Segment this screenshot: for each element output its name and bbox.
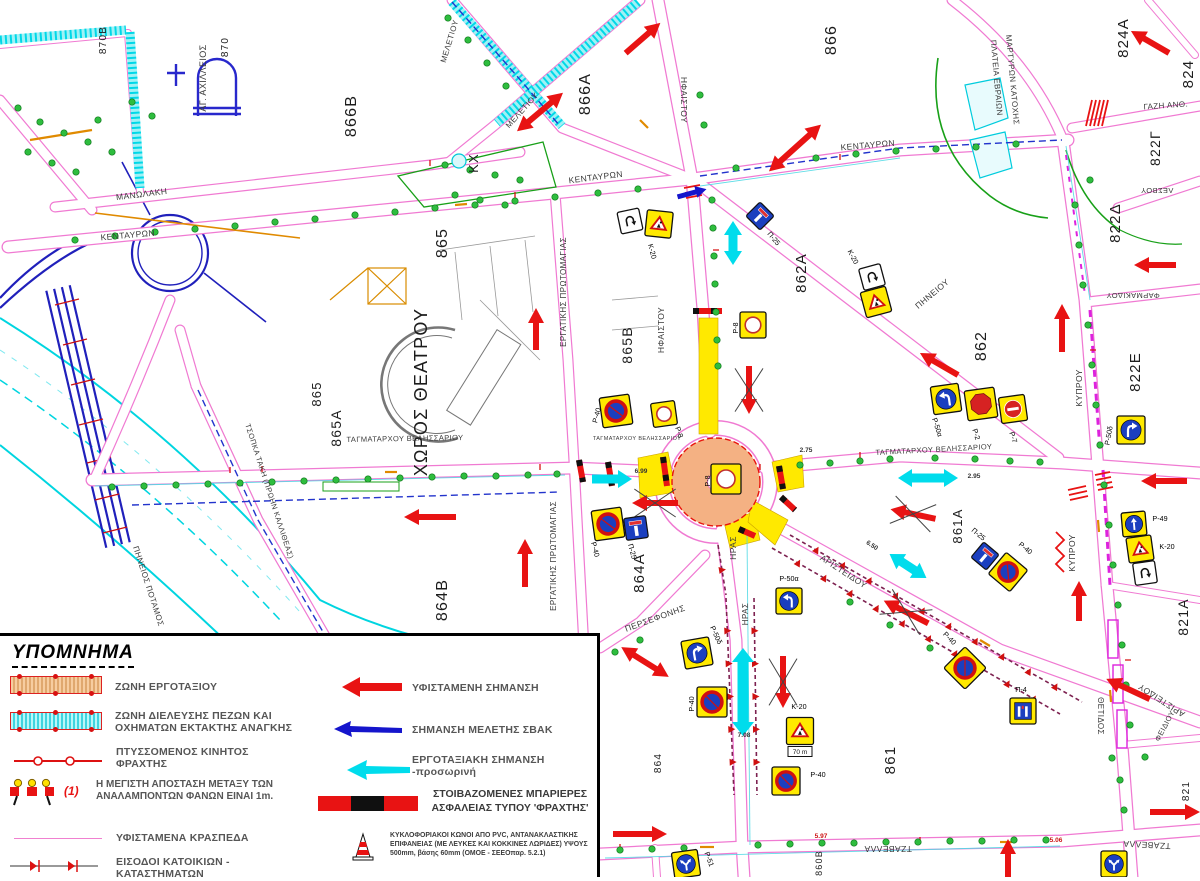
tree-marker <box>1085 322 1091 328</box>
street-label: ΠΗΝΕΙΟΥ <box>913 277 951 311</box>
tree-marker <box>847 599 853 605</box>
sign-label: Ρ-7 <box>1007 431 1019 444</box>
block-label: 864 <box>653 753 664 773</box>
tree-marker <box>492 172 498 178</box>
block-label: 870 <box>220 37 231 57</box>
tree-marker <box>979 838 985 844</box>
legend-label: ΕΡΓΟΤΑΞΙΑΚΗ ΣΗΜΑΝΣΗ <box>412 754 545 766</box>
sign-label: Ρ-8 <box>731 322 740 333</box>
tree-marker <box>887 456 893 462</box>
tree-marker <box>1106 522 1112 528</box>
legend-panel: ΥΠΟΜΝΗΜΑ ΖΩΝΗ ΕΡΓΟΤΑΞΙΟΥ ΖΩΝΗ ΔΙΕΛΕΥΣΗΣ … <box>0 633 600 877</box>
tree-marker <box>710 225 716 231</box>
tree-marker <box>512 198 518 204</box>
traffic-cone-marker <box>846 588 856 598</box>
street-label: ΜΕΛΕΤΙΟΥ <box>439 19 461 64</box>
stacked-barrier <box>781 497 795 510</box>
tree-marker <box>714 337 720 343</box>
tree-marker <box>554 471 560 477</box>
legend-label: ΥΦΙΣΤΑΜΕΝΑ ΚΡΑΣΠΕΔΑ <box>116 832 249 844</box>
tree-marker <box>461 473 467 479</box>
tree-marker <box>853 151 859 157</box>
tree-marker <box>1093 402 1099 408</box>
dimension-number: 5.97 <box>815 833 828 840</box>
tree-marker <box>887 622 893 628</box>
tree-marker <box>432 205 438 211</box>
pedestrian-zone-swatch <box>10 712 102 730</box>
street-label: ΤΑΓΜΑΤΑΡΧΟΥ ΒΕΛΗΣΣΑΡΙΟΥ <box>593 436 681 442</box>
cyan-signage-arrow <box>885 546 932 585</box>
sign-label: Κ-20 <box>846 248 861 266</box>
tree-marker <box>1127 722 1133 728</box>
block-label: 865Α <box>328 409 344 447</box>
legend-label: ΚΑΤΑΣΤΗΜΑΤΩΝ <box>116 868 204 880</box>
block-label: 824 <box>1180 60 1197 89</box>
dimension-number: 6.50 <box>865 539 880 552</box>
stacked-barrier <box>779 466 783 489</box>
tree-marker <box>827 460 833 466</box>
street-label: ΕΡΓΑΤΙΚΗΣ ΠΡΩΤΟΜΑΓΙΑΣ <box>559 237 568 347</box>
tree-marker <box>552 194 558 200</box>
traffic-sign-k20 <box>645 210 674 239</box>
sign-label: Ρ-8 <box>703 475 712 486</box>
block-label: ΚΧ <box>466 153 481 173</box>
red-signage-arrow <box>735 366 763 414</box>
tree-marker <box>893 148 899 154</box>
block-label: 866 <box>823 25 840 55</box>
tree-marker <box>1043 837 1049 843</box>
tree-marker <box>484 60 490 66</box>
tree-marker <box>472 202 478 208</box>
legend-label: ΚΥΚΛΟΦΟΡΙΑΚΟΙ ΚΩΝΟΙ ΑΠΟ PVC, ΑΝΤΑΝΑΚΛΑΣΤ… <box>390 832 590 859</box>
sign-label: Ρ-49 <box>1152 514 1167 523</box>
tree-marker <box>1087 177 1093 183</box>
traffic-sign-uturn <box>617 208 643 234</box>
traffic-sign-p51 <box>1101 851 1127 877</box>
street-label: ΗΦΑΙΣΤΟΥ <box>656 307 666 353</box>
tree-marker <box>709 197 715 203</box>
traffic-sign-uturn <box>1133 561 1158 586</box>
block-label: 822Δ <box>1107 203 1124 243</box>
tree-marker <box>445 15 451 21</box>
tree-marker <box>697 92 703 98</box>
tree-marker <box>933 146 939 152</box>
sign-label: Π-25 <box>970 526 988 543</box>
traffic-sign-p49 <box>1121 511 1147 537</box>
tree-marker <box>37 119 43 125</box>
traffic-cone-marker <box>872 603 882 613</box>
tree-marker <box>517 177 523 183</box>
tree-marker <box>715 363 721 369</box>
traffic-sign-p50d <box>681 637 713 669</box>
block-label: ΧΩΡΟΣ ΘΕΑΤΡΟΥ <box>411 308 431 476</box>
tree-marker <box>493 473 499 479</box>
tree-marker <box>617 847 623 853</box>
legend-label: ΖΩΝΗ ΕΡΓΟΤΑΞΙΟΥ <box>115 681 217 693</box>
traffic-cone-icon <box>352 832 374 867</box>
traffic-sign-k20 <box>787 718 814 745</box>
sign-label: Ρ-50δ <box>708 624 724 645</box>
block-label: 861 <box>882 746 899 775</box>
block-label: 865 <box>434 228 451 258</box>
tree-marker <box>149 113 155 119</box>
street-label: ΗΡΑΣ <box>728 536 738 560</box>
mobile-fence <box>751 598 760 795</box>
legend-label: ΕΙΣΟΔΟΙ ΚΑΤΟΙΚΙΩΝ - <box>116 856 230 868</box>
tree-marker <box>1037 459 1043 465</box>
tree-marker <box>713 309 719 315</box>
street-label: ΑΓ. ΑΧΙΛΛΕΙΟΣ <box>198 44 208 111</box>
tree-marker <box>1007 458 1013 464</box>
tree-marker <box>755 842 761 848</box>
note-number: (1) <box>64 784 79 798</box>
tree-marker <box>61 130 67 136</box>
tree-marker <box>173 482 179 488</box>
tree-marker <box>1089 362 1095 368</box>
tree-marker <box>1117 777 1123 783</box>
tree-marker <box>503 83 509 89</box>
red-signage-arrow <box>613 826 667 842</box>
block-label: 865 <box>309 381 324 406</box>
tree-marker <box>129 99 135 105</box>
red-signage-arrow <box>517 539 533 587</box>
block-label: 824Α <box>1115 18 1132 58</box>
tree-marker <box>712 281 718 287</box>
dimension-number: 6.99 <box>635 468 648 475</box>
curb-swatch <box>14 838 102 839</box>
folding-fence-icon <box>14 754 102 772</box>
block-label: 822Ε <box>1127 352 1144 392</box>
block-label: 870Β <box>98 26 109 54</box>
red-signage-arrow <box>617 640 673 683</box>
street-label: ΕΡΓΑΤΙΚΗΣ ΠΡΩΤΟΜΑΓΙΑΣ <box>549 501 558 611</box>
traffic-sign-p50d <box>1117 416 1145 444</box>
tree-marker <box>635 186 641 192</box>
stacked-barrier <box>663 457 667 486</box>
tree-marker <box>932 455 938 461</box>
traffic-sign-p8 <box>711 464 741 494</box>
tree-marker <box>1072 202 1078 208</box>
sign-label: Κ-20 <box>1159 542 1174 551</box>
red-signage-arrow <box>769 656 797 708</box>
tree-marker <box>192 226 198 232</box>
street-label: ΚΥΠΡΟΥ <box>1067 534 1077 572</box>
traffic-sign-p40 <box>591 507 625 541</box>
entrances-icon <box>10 858 98 877</box>
tree-marker <box>1011 837 1017 843</box>
tree-marker <box>72 237 78 243</box>
svg-text:70 m: 70 m <box>793 749 807 756</box>
street-label: ΦΑΡΜΑΚΙΔΟΥ <box>1106 291 1160 300</box>
traffic-sign-p25 <box>624 516 649 541</box>
tree-marker <box>502 202 508 208</box>
street-label: ΤΖΑΒΕΛΛΑ <box>864 844 912 854</box>
red-signage-arrow <box>1071 581 1087 621</box>
sign-label: Π-4 <box>1015 685 1027 694</box>
tree-marker <box>15 105 21 111</box>
traffic-sign-p40 <box>599 394 633 428</box>
traffic-sign-k20 <box>1126 535 1154 563</box>
tree-marker <box>392 209 398 215</box>
tree-marker <box>813 155 819 161</box>
street-label: ΤΖΑΒΕΛΛΑ <box>1123 839 1171 851</box>
tree-marker <box>711 253 717 259</box>
tree-marker <box>595 190 601 196</box>
tree-marker <box>109 149 115 155</box>
tree-marker <box>397 475 403 481</box>
block-label: 821Α <box>1175 598 1191 636</box>
tree-marker <box>947 838 953 844</box>
legend-label: Η ΜΕΓΙΣΤΗ ΑΠΟΣΤΑΣΗ ΜΕΤΑΞΥ ΤΩΝ <box>96 779 273 790</box>
tree-marker <box>1115 602 1121 608</box>
tree-marker <box>205 481 211 487</box>
legend-title: ΥΠΟΜΝΗΜΑ <box>12 642 134 668</box>
tree-marker <box>1101 482 1107 488</box>
tree-marker <box>819 840 825 846</box>
block-label: 866Α <box>577 73 594 115</box>
tree-marker <box>1119 642 1125 648</box>
sign-label: Ρ-40 <box>810 770 825 779</box>
dimension-number: 7.08 <box>738 732 751 739</box>
block-label: 822Γ <box>1147 130 1163 166</box>
traffic-sign-p8 <box>740 312 766 338</box>
traffic-sign-p40 <box>772 767 800 795</box>
tree-marker <box>927 645 933 651</box>
tree-marker <box>1142 754 1148 760</box>
tree-marker <box>1121 807 1127 813</box>
legend-label: ΣΤΟΙΒΑΖΟΜΕΝΕΣ ΜΠΑΡΙΕΡΕΣ <box>433 788 587 800</box>
block-label: 864Α <box>631 553 648 593</box>
traffic-sign-p50a <box>776 588 802 614</box>
tree-marker <box>442 162 448 168</box>
tree-marker <box>352 212 358 218</box>
tree-marker <box>312 216 318 222</box>
sign-label: Ρ-50α <box>779 574 798 583</box>
tree-marker <box>452 192 458 198</box>
existing-signage-arrow-icon <box>340 676 402 703</box>
traffic-cone-marker <box>794 558 804 568</box>
tree-marker <box>733 165 739 171</box>
traffic-sign-p40 <box>697 687 727 717</box>
tree-marker <box>612 649 618 655</box>
red-signage-arrow <box>1134 257 1176 273</box>
tree-marker <box>477 197 483 203</box>
pedestrian-zones <box>0 2 638 188</box>
dimension-number: 2.75 <box>800 447 813 454</box>
street-label: ΗΦΑΙΣΤΟΥ <box>679 77 689 123</box>
legend-label: ΑΝΑΛΑΜΠΟΝΤΩΝ ΦΑΝΩΝ ΕΙΝΑΙ 1m. <box>96 791 273 802</box>
tree-marker <box>857 458 863 464</box>
sign-label: Ρ-2 <box>970 428 982 441</box>
street-label: ΛΕΣΒΟΥ <box>1141 186 1174 195</box>
sign-label: Κ-20 <box>791 702 806 711</box>
sign-label: Ρ-50α <box>930 417 945 438</box>
cyan-signage-arrow <box>724 221 742 265</box>
tree-marker <box>365 476 371 482</box>
street-label: ΘΕΤΙΔΟΣ <box>1096 697 1105 735</box>
legend-label: ΖΩΝΗ ΔΙΕΛΕΥΣΗΣ ΠΕΖΩΝ ΚΑΙ <box>115 710 272 722</box>
tree-marker <box>109 484 115 490</box>
red-signage-arrow <box>528 308 544 350</box>
block-label: 862Α <box>793 253 810 293</box>
cyan-signage-arrow <box>898 469 958 487</box>
tree-marker <box>525 472 531 478</box>
sign-label: Ρ-40 <box>589 541 602 558</box>
block-label: 862 <box>973 331 990 361</box>
tree-marker <box>915 839 921 845</box>
tree-marker <box>1080 282 1086 288</box>
dimension-number: 2.95 <box>968 473 981 480</box>
traffic-sign-p4 <box>1010 698 1036 724</box>
street-label: ΗΡΑΣ <box>741 603 750 625</box>
block-label: 866Β <box>343 95 360 137</box>
block-label: 860Β <box>814 850 824 876</box>
tree-marker <box>301 478 307 484</box>
dimension-number: 5.06 <box>1050 837 1063 844</box>
tree-marker <box>1076 242 1082 248</box>
tree-marker <box>1013 141 1019 147</box>
work-zone-swatch <box>10 676 102 694</box>
traffic-sign-p50a <box>930 383 962 415</box>
sign-label: Ρ-50δ <box>1102 425 1114 445</box>
tree-marker <box>465 37 471 43</box>
tree-marker <box>649 846 655 852</box>
tree-marker <box>973 144 979 150</box>
tree-marker <box>49 160 55 166</box>
red-signage-arrow <box>1150 804 1200 820</box>
legend-label: ΥΦΙΣΤΑΜΕΝΗ ΣΗΜΑΝΣΗ <box>412 682 539 694</box>
stacked-barriers-swatch <box>318 796 418 811</box>
street-label: ΠΗΝΕΙΟΣ ΠΟΤΑΜΟΣ <box>131 545 165 627</box>
tree-marker <box>701 122 707 128</box>
tree-marker <box>25 149 31 155</box>
red-signage-arrow <box>1054 304 1070 352</box>
tree-marker <box>237 480 243 486</box>
tree-marker <box>141 483 147 489</box>
tree-marker <box>972 456 978 462</box>
tree-marker <box>637 637 643 643</box>
sign-label: Ρ-40 <box>687 696 696 711</box>
block-label: 821 <box>1181 781 1192 801</box>
worksite-signage-arrow-icon <box>344 758 410 787</box>
tree-marker <box>851 840 857 846</box>
block-label: 861Α <box>950 508 965 543</box>
sign-plate: 70 m <box>788 747 812 757</box>
tree-marker <box>232 223 238 229</box>
tree-marker <box>1110 562 1116 568</box>
legend-label: ΣΗΜΑΝΣΗ ΜΕΛΕΤΗΣ ΣΒΑΚ <box>412 724 553 736</box>
sign-label: Ρ-40 <box>1017 540 1034 557</box>
legend-label: ΑΣΦΑΛΕΙΑΣ ΤΥΠΟΥ 'ΦΡΑΧΤΗΣ' <box>431 802 588 814</box>
block-label: 865Β <box>619 326 635 364</box>
svak-signage-arrow-icon <box>332 720 402 745</box>
tree-marker <box>333 477 339 483</box>
legend-label: ΦΡΑΧΤΗΣ <box>116 758 167 770</box>
tree-marker <box>272 219 278 225</box>
red-signage-arrow <box>1127 24 1173 60</box>
legend-label: ΟΧΗΜΑΤΩΝ ΕΚΤΑΚΤΗΣ ΑΝΑΓΚΗΣ <box>115 722 292 734</box>
legend-label: -προσωρινή <box>412 766 476 778</box>
stacked-barrier <box>579 460 583 482</box>
legend-label: ΠΤΥΣΣΟΜΕΝΟΣ ΚΙΝΗΤΟΣ <box>116 746 249 758</box>
red-signage-arrow <box>888 496 939 533</box>
traffic-sign-p7 <box>998 394 1027 423</box>
sign-label: Ρ-40 <box>590 407 603 424</box>
traffic-sign-p51 <box>671 849 700 877</box>
tree-marker <box>787 841 793 847</box>
traffic-sign-p8 <box>650 400 677 427</box>
tree-marker <box>95 117 101 123</box>
red-signage-arrow <box>404 509 456 525</box>
tree-marker <box>73 169 79 175</box>
street-label: ΚΥΠΡΟΥ <box>1074 369 1084 407</box>
sign-label: Κ-20 <box>646 243 659 260</box>
tree-marker <box>797 462 803 468</box>
flashing-barrier-icon <box>8 776 60 811</box>
street-label: ΤΑΓΜΑΤΑΡΧΟΥ ΒΕΛΗΣΣΑΡΙΟΥ <box>346 433 463 444</box>
traffic-sign-p40 <box>944 647 986 689</box>
tree-marker <box>1109 755 1115 761</box>
traffic-sign-p2 <box>964 387 998 421</box>
block-label: 864Β <box>434 579 451 621</box>
tree-marker <box>85 139 91 145</box>
